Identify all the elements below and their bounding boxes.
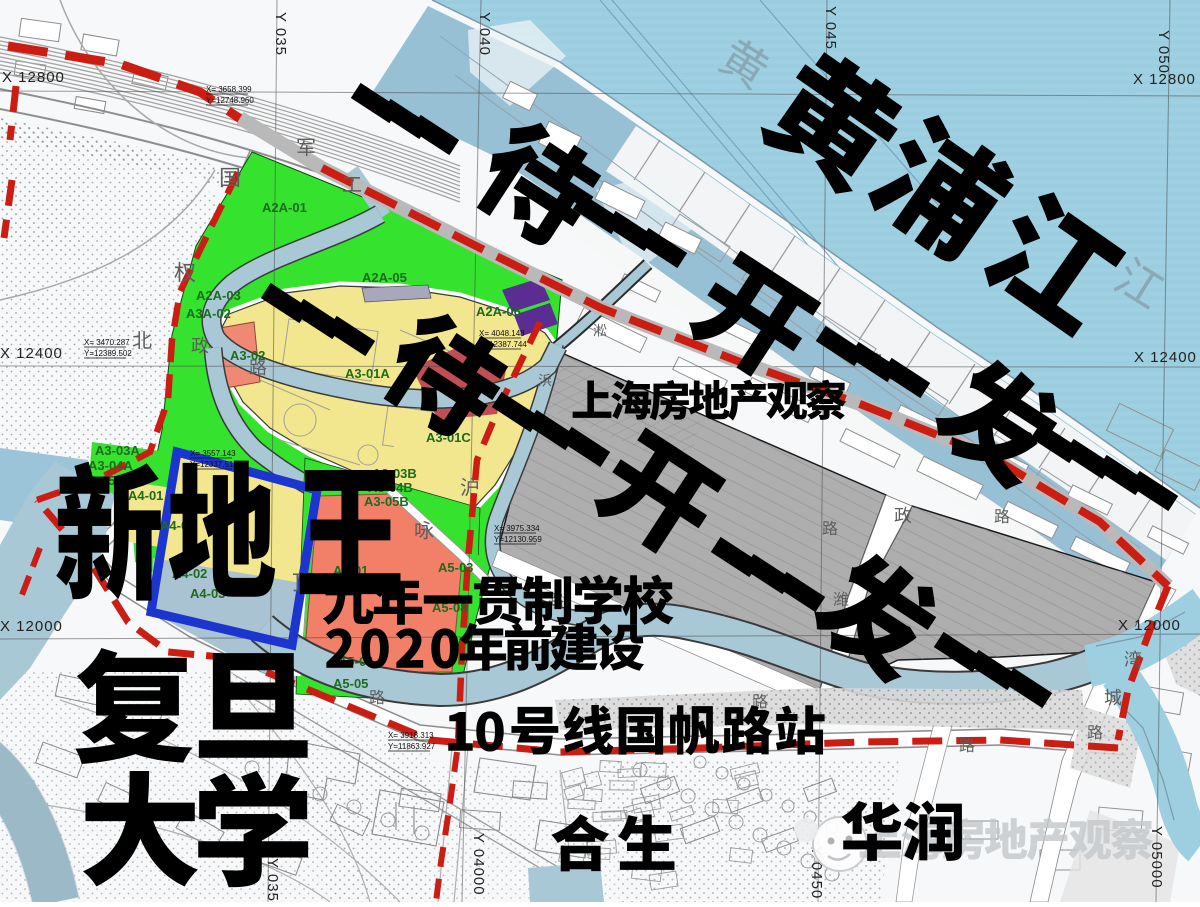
svg-text:Y 035: Y 035 (264, 858, 281, 902)
svg-text:A2A-05: A2A-05 (362, 270, 407, 285)
svg-text:X 12000: X 12000 (0, 618, 63, 635)
svg-text:X= 3975.334: X= 3975.334 (494, 524, 540, 533)
svg-text:A2A-03: A2A-03 (196, 288, 241, 303)
svg-text:X= 3918.313: X= 3918.313 (388, 731, 434, 740)
svg-text:A5-05: A5-05 (333, 676, 368, 691)
svg-text:Y=12389.502: Y=12389.502 (84, 349, 132, 358)
svg-text:Y 05000: Y 05000 (1148, 826, 1165, 889)
svg-text:Y 050: Y 050 (1155, 30, 1172, 74)
svg-text:A2A-01: A2A-01 (262, 200, 307, 215)
svg-text:A3-01A: A3-01A (345, 366, 390, 381)
svg-text:A3-04A: A3-04A (88, 458, 133, 473)
svg-text:X= 4048.148: X= 4048.148 (479, 329, 525, 338)
svg-text:X 12000: X 12000 (1118, 617, 1181, 634)
svg-text:A3A-02: A3A-02 (186, 306, 231, 321)
svg-text:Y 04000: Y 04000 (470, 833, 487, 896)
svg-text:Y 045: Y 045 (822, 6, 839, 50)
svg-text:Y 035: Y 035 (272, 12, 289, 56)
svg-text:A5-03: A5-03 (438, 560, 473, 575)
svg-text:A3-03A: A3-03A (95, 443, 140, 458)
svg-text:X= 3470.287: X= 3470.287 (84, 338, 130, 347)
svg-text:Y 040: Y 040 (476, 12, 493, 56)
svg-text:A4-01: A4-01 (128, 488, 163, 503)
svg-text:X 12400: X 12400 (0, 345, 63, 362)
svg-text:A2A-06: A2A-06 (476, 304, 521, 319)
svg-text:X 12800: X 12800 (2, 69, 65, 86)
svg-text:Y=11863.927: Y=11863.927 (388, 742, 436, 751)
svg-text:X= 3658.399: X= 3658.399 (206, 85, 252, 94)
svg-text:X= 3557.143: X= 3557.143 (190, 449, 236, 458)
svg-text:Y=12130.959: Y=12130.959 (494, 535, 542, 544)
svg-text:Y=12748.960: Y=12748.960 (206, 96, 254, 105)
svg-text:X 12400: X 12400 (1134, 349, 1197, 366)
svg-text:A3-05B: A3-05B (364, 494, 409, 509)
